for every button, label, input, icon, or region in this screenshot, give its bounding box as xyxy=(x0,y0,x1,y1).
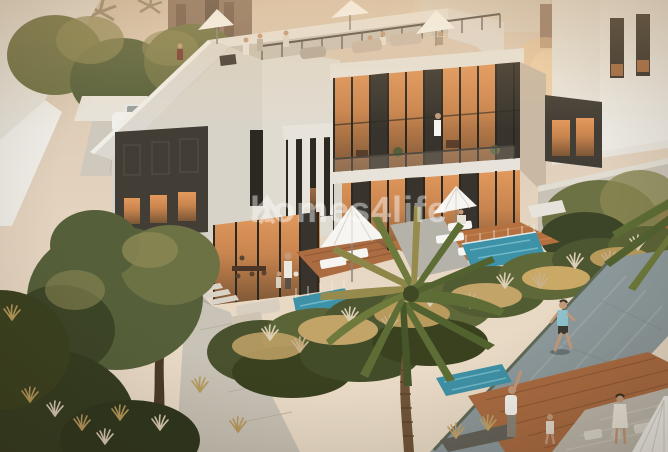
villa-rendering: homes4life xyxy=(0,0,668,452)
vignette xyxy=(0,0,668,452)
rendering-canvas xyxy=(0,0,668,452)
